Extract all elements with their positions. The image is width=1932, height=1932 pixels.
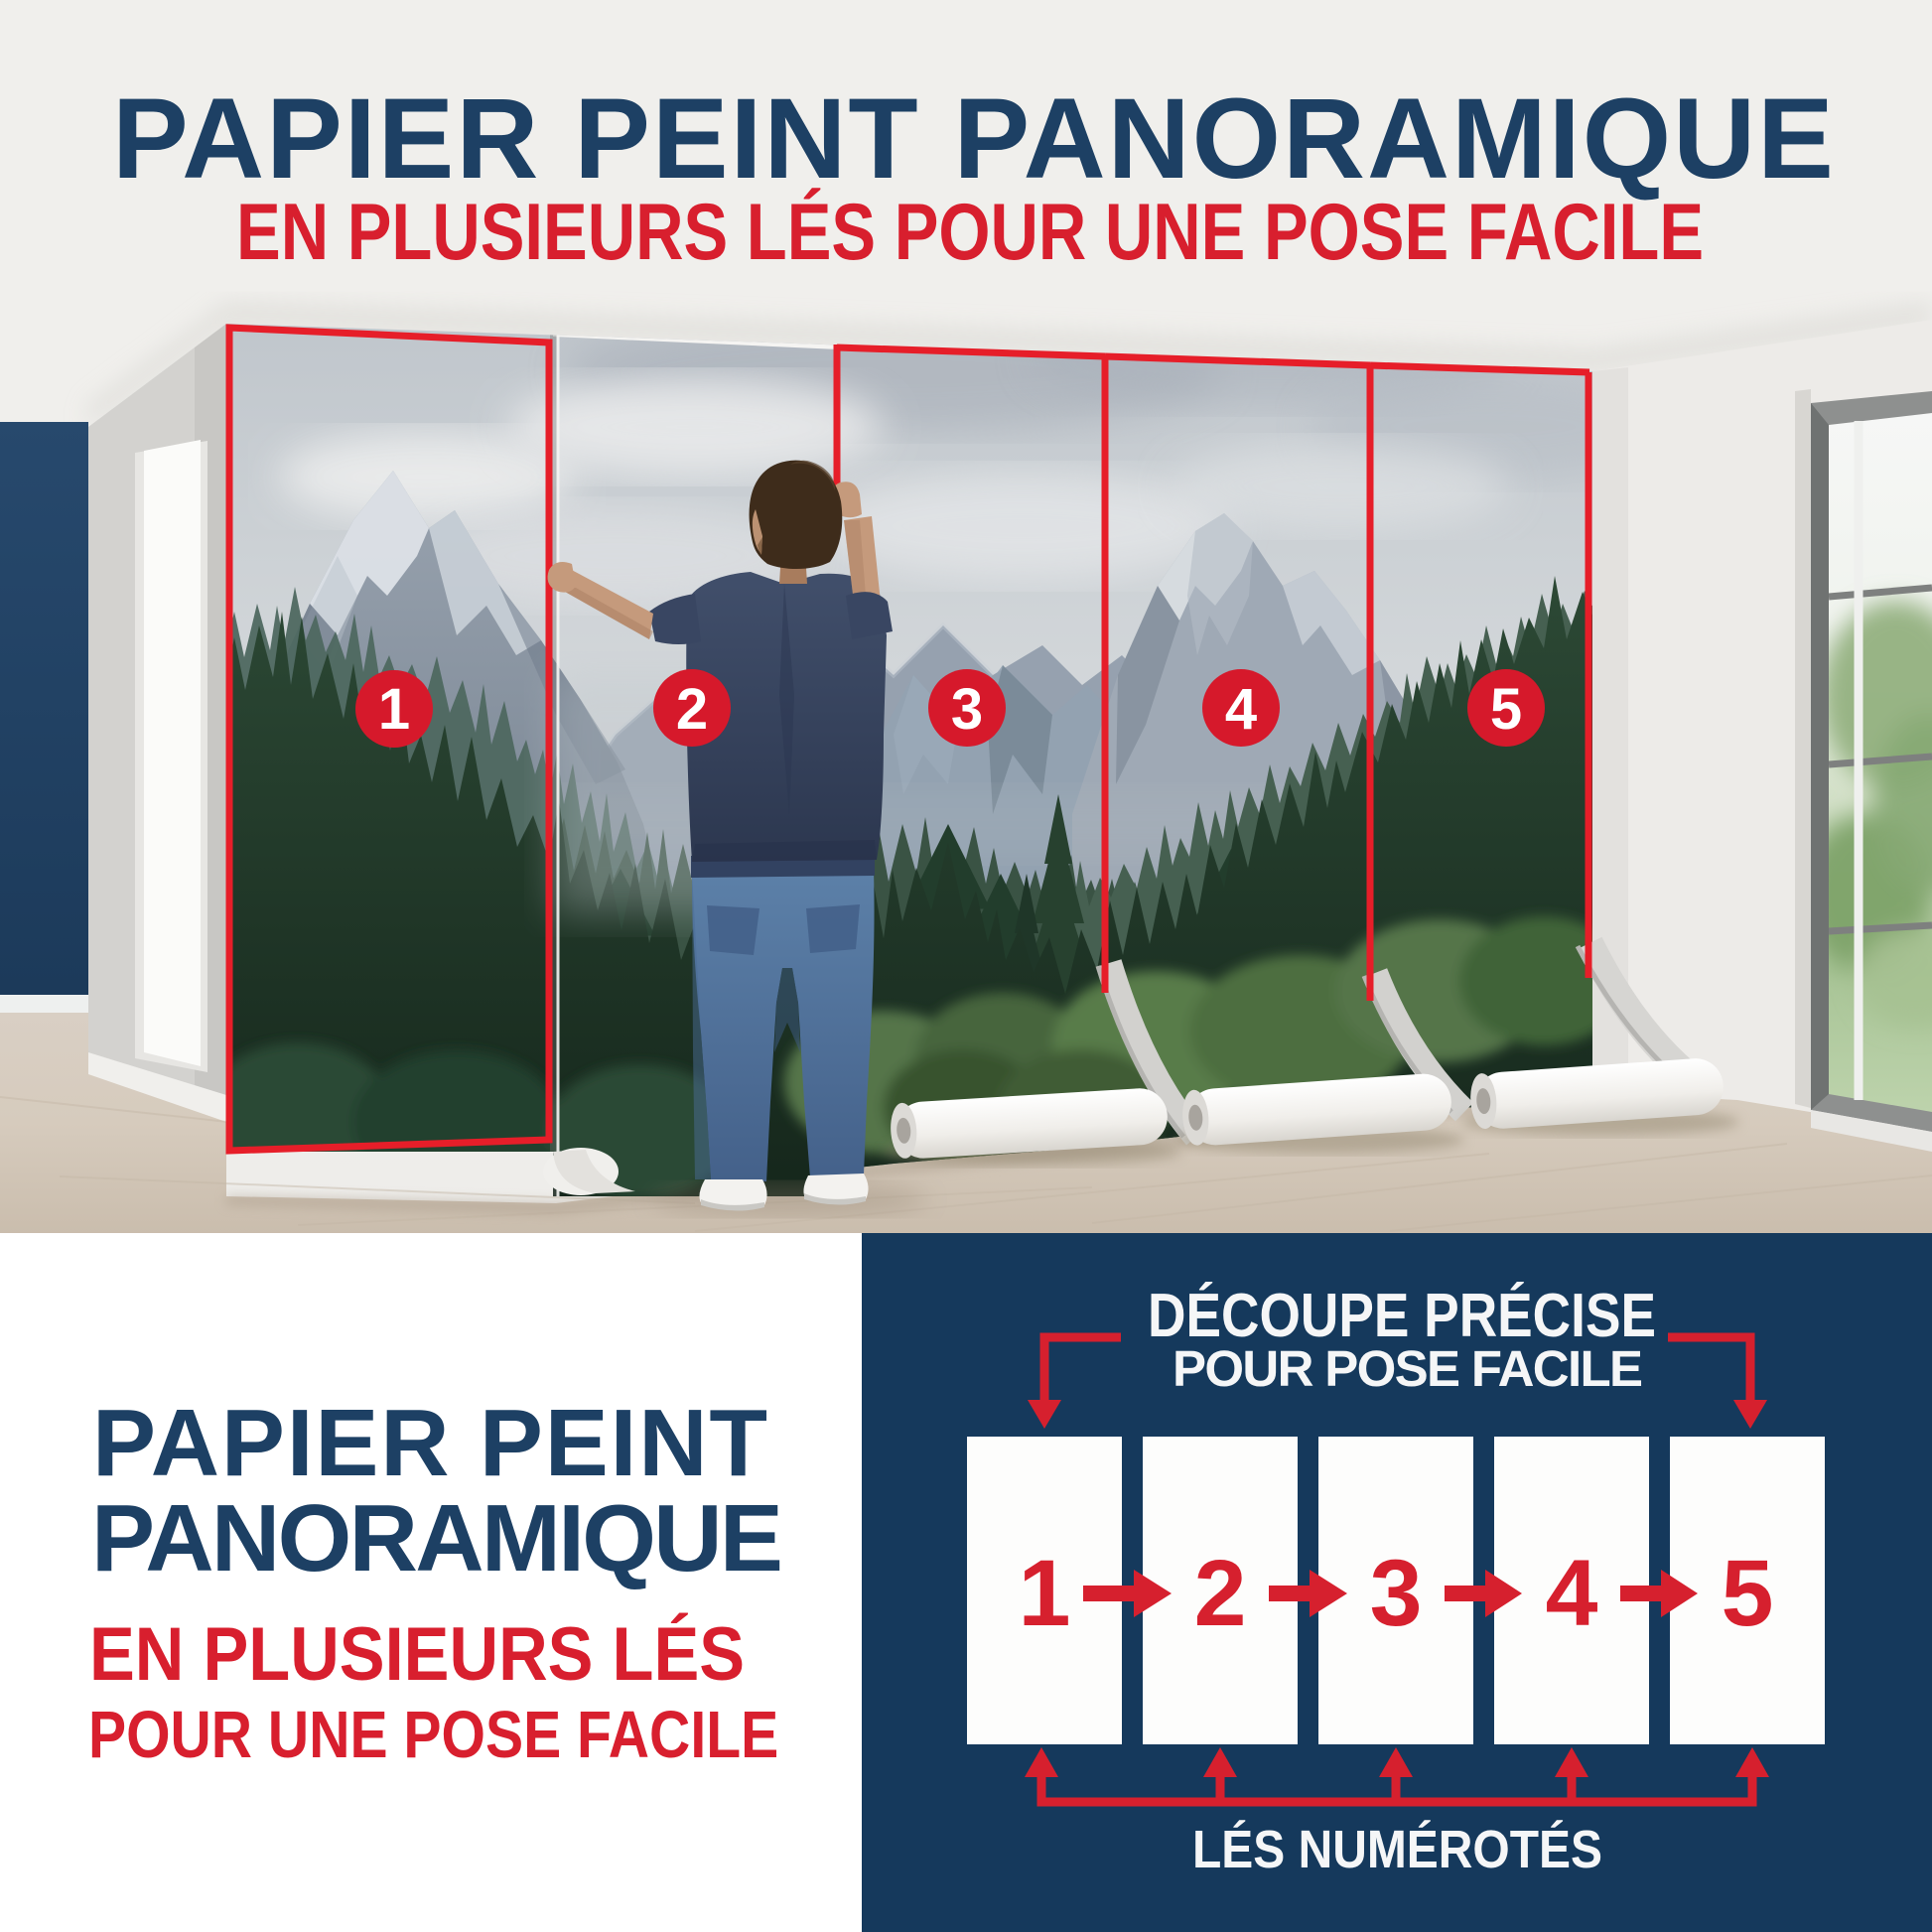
svg-text:5: 5	[1490, 677, 1522, 742]
svg-text:4: 4	[1546, 1541, 1598, 1646]
svg-text:3: 3	[1370, 1541, 1423, 1646]
svg-text:5: 5	[1722, 1541, 1774, 1646]
svg-text:1: 1	[378, 677, 410, 742]
svg-text:2: 2	[676, 677, 708, 742]
svg-text:4: 4	[1225, 677, 1257, 742]
svg-text:3: 3	[951, 677, 983, 742]
svg-text:2: 2	[1194, 1541, 1247, 1646]
svg-text:1: 1	[1019, 1541, 1071, 1646]
